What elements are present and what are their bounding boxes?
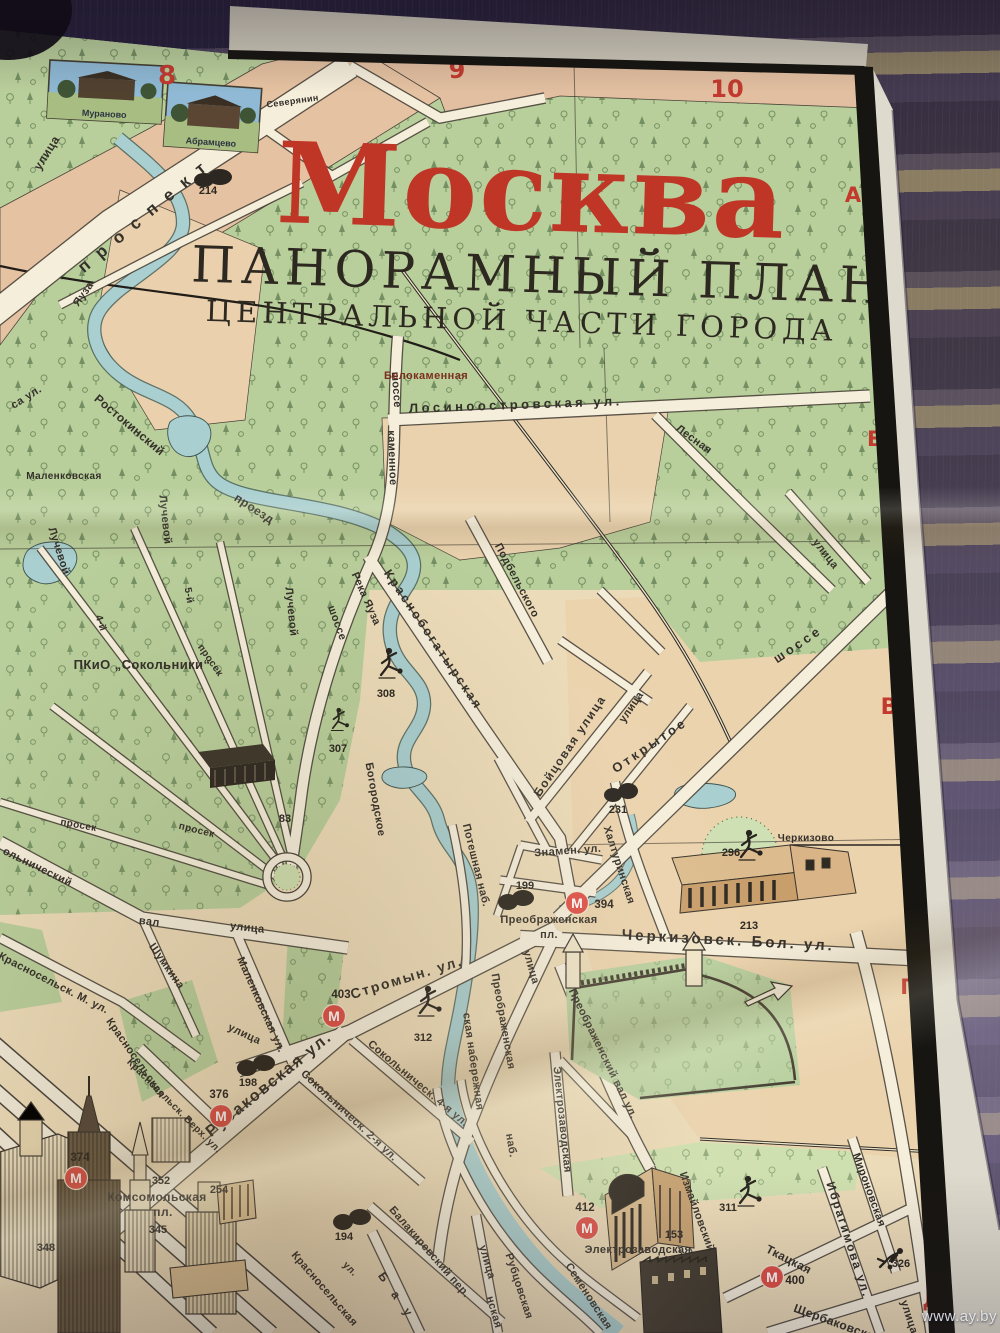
metro-letter: М xyxy=(215,1108,227,1124)
metro-letter: М xyxy=(328,1008,340,1024)
metro-letter: М xyxy=(70,1170,82,1186)
poi-number: 345 xyxy=(149,1224,167,1236)
poi-number: 307 xyxy=(329,743,347,755)
metro-number: 374 xyxy=(70,1152,90,1164)
street-label: вал xyxy=(138,915,160,929)
inset-muranovo: Мураново xyxy=(47,60,164,124)
street-label: пл. xyxy=(540,929,558,941)
metro-number: 394 xyxy=(594,899,614,911)
metro-letter: М xyxy=(571,895,583,911)
map-sheet: Мураново Абрамцево Северянинулицапроспек… xyxy=(0,0,1000,1333)
poi-number: 311 xyxy=(719,1202,737,1214)
metro-number: 403 xyxy=(331,989,350,1001)
dark-building-bottom xyxy=(640,1248,722,1333)
poi-number: 348 xyxy=(37,1242,55,1254)
metro-letter: М xyxy=(581,1220,593,1236)
poi-number: 213 xyxy=(740,920,758,932)
poi-number: 199 xyxy=(516,880,534,892)
street-label: ПКиО „Сокольники“ xyxy=(74,657,211,672)
poi-number: 231 xyxy=(609,804,627,816)
street-label: Маленковская xyxy=(26,471,101,482)
street-label: Комсомольская xyxy=(107,1190,206,1204)
poi-number: 198 xyxy=(239,1077,257,1089)
metro-number: 400 xyxy=(785,1275,804,1287)
street-label: пл. xyxy=(153,1205,172,1219)
street-label: Черкизово xyxy=(778,833,834,844)
metro-number: 376 xyxy=(209,1089,228,1101)
photo-of-folded-moscow-map: Мураново Абрамцево Северянинулицапроспек… xyxy=(0,0,1000,1333)
poi-number: 254 xyxy=(210,1184,229,1196)
inset-abramtsevo: Абрамцево xyxy=(164,82,262,152)
grid-letter: 8 xyxy=(158,61,176,91)
map-content: Мураново Абрамцево Северянинулицапроспек… xyxy=(0,0,1000,1333)
grid-letter: А xyxy=(845,183,862,207)
poi-number: 312 xyxy=(414,1032,432,1044)
poi-number: 352 xyxy=(152,1175,170,1187)
street-label: Преображенская xyxy=(500,914,597,926)
poi-number: 83 xyxy=(279,813,291,825)
street-label: Электрозаводская xyxy=(585,1244,692,1256)
poi-number: 308 xyxy=(377,688,395,700)
poi-number: 153 xyxy=(665,1229,683,1241)
metro-letter: М xyxy=(766,1269,778,1285)
poi-number: 194 xyxy=(335,1231,354,1243)
street-label: Белокаменная xyxy=(384,370,468,382)
metro-number: 412 xyxy=(575,1202,594,1214)
poi-number: 214 xyxy=(199,185,218,197)
street-label: каменное xyxy=(385,430,399,486)
poi-number: 326 xyxy=(892,1258,910,1270)
watermark: www.ay.by xyxy=(922,1308,997,1325)
poi-number: 296 xyxy=(722,847,740,859)
grid-letter: 10 xyxy=(710,75,743,103)
